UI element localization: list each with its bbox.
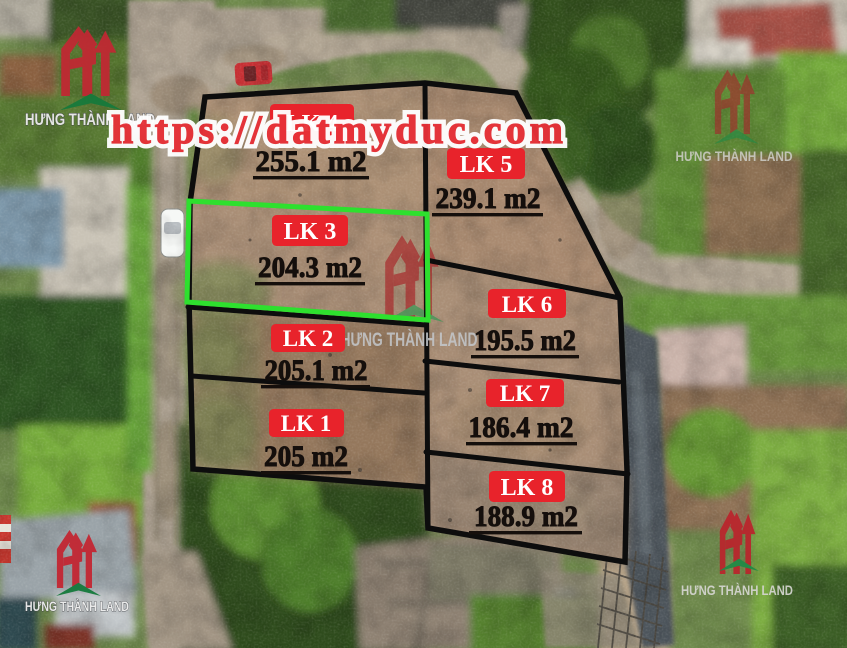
svg-text:LK 1: LK 1	[281, 411, 331, 436]
svg-text:HƯNG THÀNH LAND: HƯNG THÀNH LAND	[25, 110, 155, 129]
svg-text:HƯNG THÀNH LAND: HƯNG THÀNH LAND	[681, 583, 793, 598]
svg-text:188.9 m2: 188.9 m2	[474, 500, 578, 533]
svg-text:LK 6: LK 6	[502, 292, 552, 317]
svg-text:LK 2: LK 2	[283, 326, 333, 351]
svg-text:HƯNG THÀNH LAND: HƯNG THÀNH LAND	[25, 598, 129, 614]
svg-text:HƯNG THÀNH LAND: HƯNG THÀNH LAND	[676, 148, 793, 164]
svg-text:205.1 m2: 205.1 m2	[265, 354, 368, 387]
svg-text:186.4 m2: 186.4 m2	[469, 411, 574, 444]
svg-text:LK 3: LK 3	[284, 219, 337, 245]
svg-text:LK 7: LK 7	[500, 381, 550, 406]
svg-text:204.3 m2: 204.3 m2	[258, 251, 362, 284]
svg-text:205 m2: 205 m2	[264, 440, 348, 473]
svg-text:239.1 m2: 239.1 m2	[436, 182, 541, 215]
svg-text:195.5 m2: 195.5 m2	[474, 324, 576, 357]
svg-text:HƯNG THÀNH LAND: HƯNG THÀNH LAND	[341, 329, 478, 351]
svg-text:LK 8: LK 8	[501, 475, 554, 501]
svg-text:https://datmyduc.com: https://datmyduc.com	[111, 107, 563, 152]
svg-text:LK 5: LK 5	[460, 152, 513, 178]
